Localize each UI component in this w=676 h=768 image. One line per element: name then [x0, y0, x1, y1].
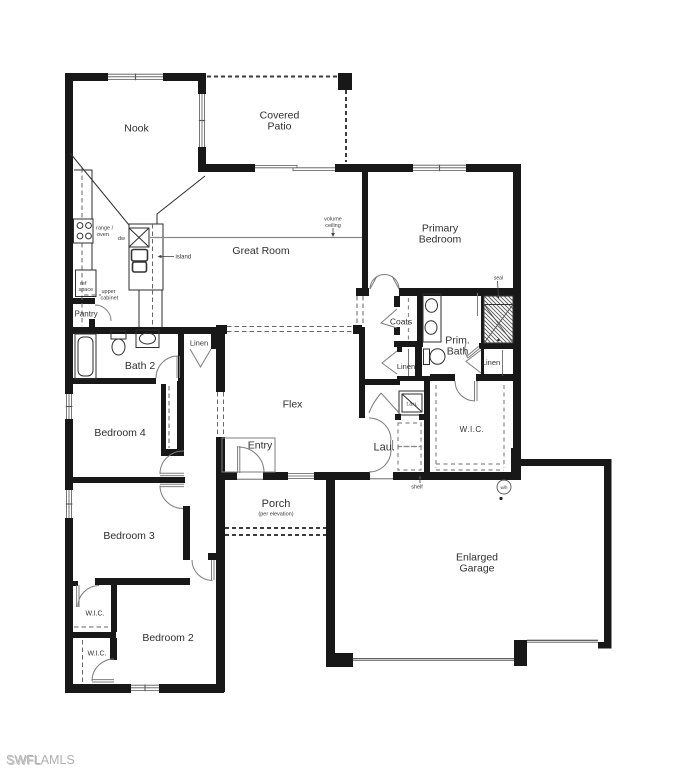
svg-text:space: space	[79, 287, 94, 293]
svg-text:Pantry: Pantry	[75, 310, 98, 319]
svg-text:Patio: Patio	[268, 121, 292, 133]
svg-text:upper: upper	[102, 289, 116, 295]
svg-text:Lau.: Lau.	[374, 442, 395, 454]
svg-text:t.a.u.: t.a.u.	[406, 402, 417, 408]
svg-text:shelf: shelf	[411, 485, 423, 491]
svg-text:Bedroom: Bedroom	[419, 234, 462, 246]
svg-text:volume: volume	[324, 217, 342, 223]
svg-text:Porch: Porch	[262, 498, 291, 510]
svg-text:W.I.C.: W.I.C.	[85, 611, 104, 618]
svg-text:oven: oven	[97, 232, 109, 238]
svg-text:W.I.C.: W.I.C.	[87, 651, 106, 658]
svg-text:Entry: Entry	[248, 440, 273, 452]
svg-text:w/h: w/h	[500, 485, 508, 490]
svg-text:(per elevation): (per elevation)	[258, 512, 293, 518]
svg-text:range /: range /	[96, 226, 114, 232]
svg-text:Bath: Bath	[447, 346, 469, 358]
svg-text:Bedroom 4: Bedroom 4	[94, 427, 146, 439]
svg-text:SWFL: SWFL	[7, 754, 42, 768]
svg-text:island: island	[176, 255, 192, 261]
svg-text:Flex: Flex	[283, 399, 304, 411]
svg-text:Coats: Coats	[390, 317, 412, 327]
svg-text:Linen: Linen	[190, 339, 208, 348]
svg-text:W.I.C.: W.I.C.	[460, 425, 485, 434]
svg-text:Bedroom 2: Bedroom 2	[142, 632, 194, 644]
svg-text:Bath 2: Bath 2	[125, 360, 156, 372]
svg-text:Garage: Garage	[459, 563, 494, 575]
svg-text:cabinet: cabinet	[101, 296, 119, 302]
svg-text:Linen: Linen	[397, 362, 415, 371]
svg-text:dw: dw	[118, 236, 125, 242]
svg-text:Great Room: Great Room	[232, 245, 289, 257]
svg-text:Bedroom 3: Bedroom 3	[103, 530, 155, 542]
svg-text:Linen: Linen	[482, 358, 500, 367]
svg-text:seal: seal	[494, 276, 503, 282]
svg-text:ceiling: ceiling	[325, 223, 341, 229]
svg-text:Nook: Nook	[124, 123, 149, 135]
